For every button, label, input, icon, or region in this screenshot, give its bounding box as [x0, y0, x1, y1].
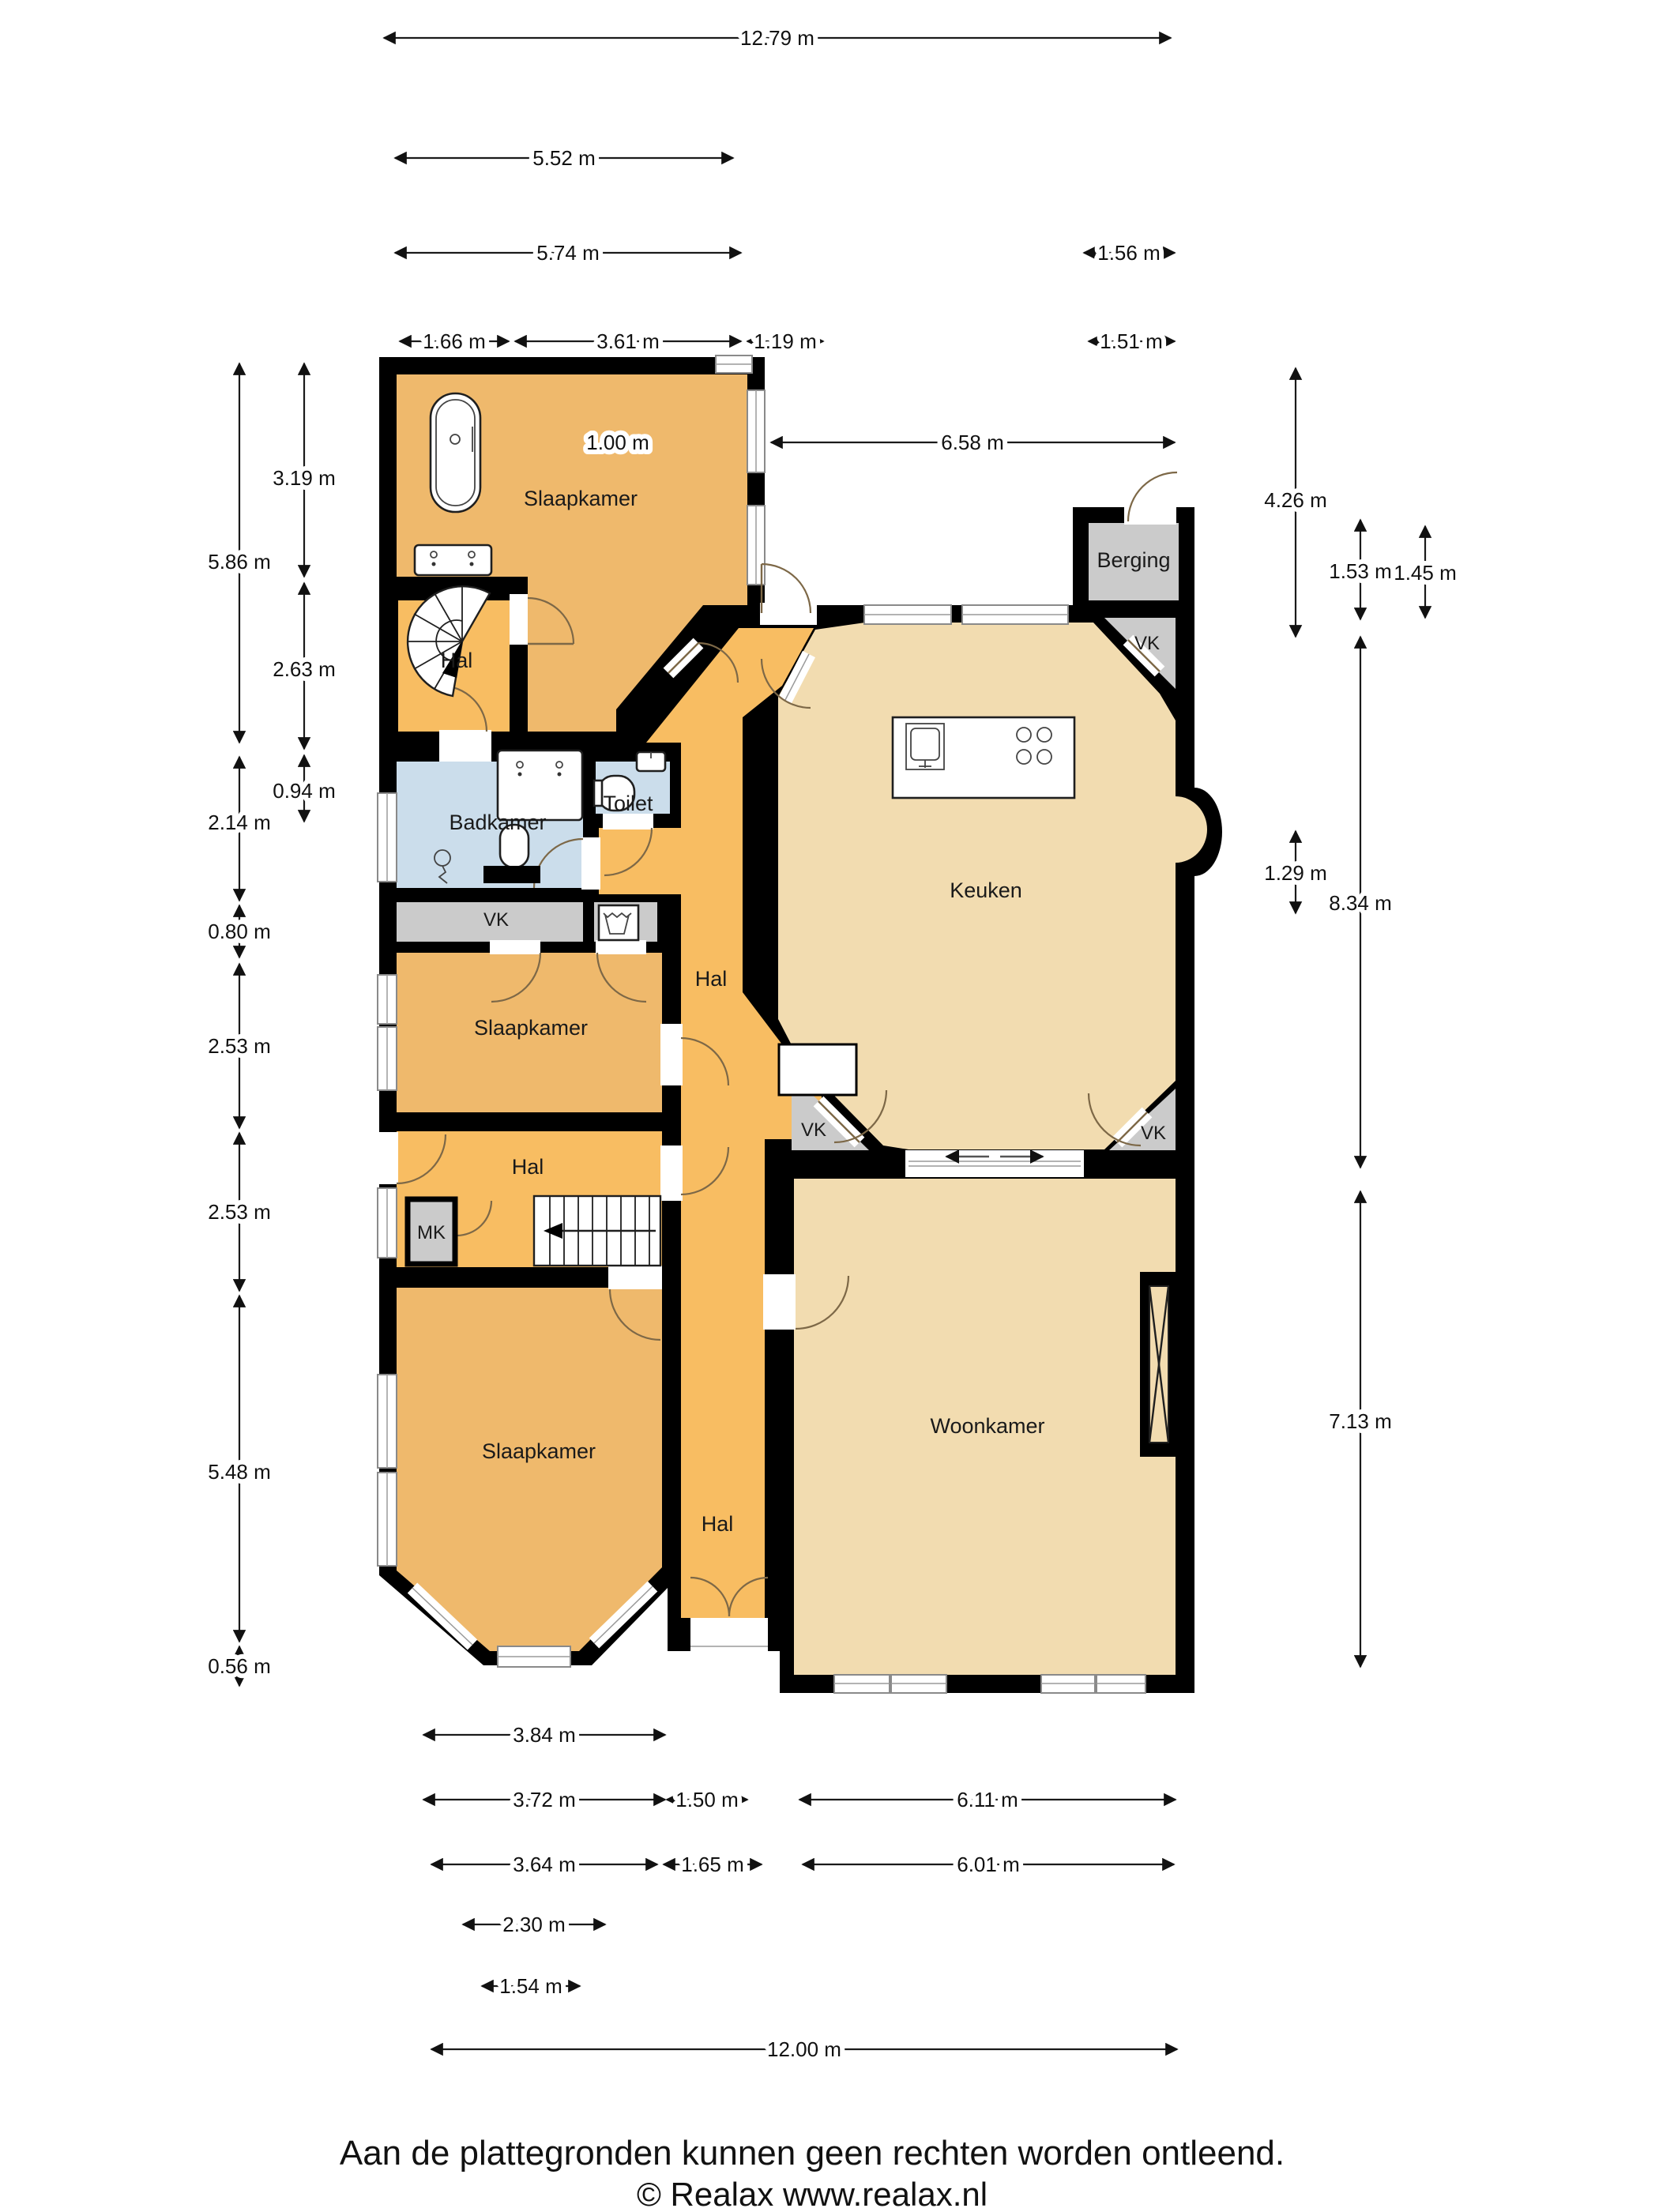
- dimension-label: 7.13 m: [1329, 1409, 1392, 1433]
- dimension-label: 6.11 m: [957, 1788, 1018, 1811]
- dimension-label: 6.58 m: [941, 431, 1004, 454]
- dimension-label: 1.53 m: [1329, 559, 1392, 583]
- dimension-label: 3.19 m: [273, 466, 336, 490]
- label-hal-bottom: Hal: [702, 1512, 734, 1536]
- vanity: [498, 750, 582, 820]
- dimension-label: 0.94 m: [273, 779, 336, 803]
- door: [660, 1024, 683, 1085]
- vanity: [415, 545, 491, 575]
- label-slaapkamer-mid: Slaapkamer: [474, 1016, 588, 1040]
- label-berging: Berging: [1097, 548, 1170, 572]
- disclaimer-text: Aan de plattegronden kunnen geen rechten…: [340, 2134, 1285, 2172]
- dimension-label: 12.79 m: [740, 26, 814, 50]
- dimension-label: 2.14 m: [208, 811, 271, 834]
- door: [760, 603, 817, 625]
- copyright-text: © Realax www.realax.nl: [637, 2176, 987, 2212]
- label-vk-bottomright: VK: [1141, 1123, 1166, 1144]
- label-woonkamer: Woonkamer: [930, 1414, 1044, 1438]
- dimension-label: 1.51 m: [1100, 329, 1163, 353]
- dimension-label: 5.52 m: [532, 146, 596, 170]
- label-slaapkamer-top: Slaapkamer: [524, 487, 638, 510]
- dimension-label: 3.64 m: [513, 1853, 576, 1876]
- dimension-label: 5.86 m: [208, 550, 271, 574]
- dimension-label: 1.50 m: [675, 1788, 739, 1811]
- door: [608, 1266, 662, 1289]
- door: [660, 1145, 683, 1201]
- label-mk: MK: [417, 1222, 446, 1243]
- door: [376, 1132, 398, 1184]
- kitchen-pass: [779, 1044, 856, 1095]
- dimension-label: 8.34 m: [1329, 891, 1392, 915]
- label-vk-bottomleft: VK: [801, 1119, 826, 1141]
- label-keuken: Keuken: [950, 878, 1022, 902]
- footer: Aan de plattegronden kunnen geen rechten…: [340, 2134, 1285, 2212]
- label-vk-topright: VK: [1134, 633, 1160, 654]
- dimension-label: 1.56 m: [1097, 241, 1161, 265]
- dimension-label: 6.01 m: [957, 1853, 1020, 1876]
- washing-machine: [599, 905, 638, 940]
- dimension-label: 0.80 m: [208, 920, 271, 943]
- dimension-label: 1.45 m: [1394, 561, 1457, 585]
- door: [603, 814, 653, 829]
- dimension-label: 5.74 m: [536, 241, 600, 265]
- label-vk-strip: VK: [483, 909, 509, 931]
- dimension-label: 2.53 m: [208, 1200, 271, 1224]
- dimension-label: 2.63 m: [273, 657, 336, 681]
- kitchen-island: [893, 717, 1074, 798]
- floor-plan: Slaapkamer Hal Badkamer Toilet VK Slaapk…: [376, 355, 1222, 1693]
- dimension-label: 2.30 m: [502, 1913, 566, 1936]
- dimension-label: 3.61 m: [596, 329, 660, 353]
- floorplan-canvas: Slaapkamer Hal Badkamer Toilet VK Slaapk…: [0, 0, 1659, 2212]
- label-toilet: Toilet: [603, 792, 653, 815]
- dimension-label: 1.65 m: [681, 1853, 744, 1876]
- label-hal-center: Hal: [695, 967, 728, 991]
- sliding-door: [905, 1150, 1084, 1177]
- door: [510, 594, 528, 645]
- label-hal-mid: Hal: [512, 1155, 544, 1179]
- door: [596, 940, 646, 954]
- dimension-label: 5.48 m: [208, 1460, 271, 1484]
- dimension-label: 1.29 m: [1264, 861, 1327, 885]
- dimension-label: 1.00 m: [586, 431, 649, 454]
- label-hal-top: Hal: [441, 649, 473, 672]
- shower-base: [483, 866, 540, 883]
- dimension-label: 0.56 m: [208, 1654, 271, 1678]
- dimension-label: 1.19 m: [754, 329, 817, 353]
- label-badkamer: Badkamer: [449, 811, 546, 834]
- door: [439, 730, 491, 762]
- label-slaapkamer-bottom: Slaapkamer: [482, 1439, 596, 1463]
- dimension-label: 3.72 m: [513, 1788, 576, 1811]
- staircase: [534, 1196, 660, 1266]
- door: [490, 940, 540, 954]
- dimension-label: 3.84 m: [513, 1723, 576, 1747]
- room-slaapkamer-bottom: [397, 1288, 662, 1651]
- door: [1124, 504, 1176, 525]
- door: [581, 837, 600, 890]
- dimension-label: 12.00 m: [767, 2037, 841, 2061]
- dimension-label: 1.54 m: [499, 1974, 562, 1998]
- dimension-label: 4.26 m: [1264, 488, 1327, 512]
- door: [763, 1274, 796, 1330]
- glass-panel: [1149, 1286, 1168, 1443]
- dimension-label: 2.53 m: [208, 1034, 271, 1058]
- dimension-label: 1.66 m: [423, 329, 486, 353]
